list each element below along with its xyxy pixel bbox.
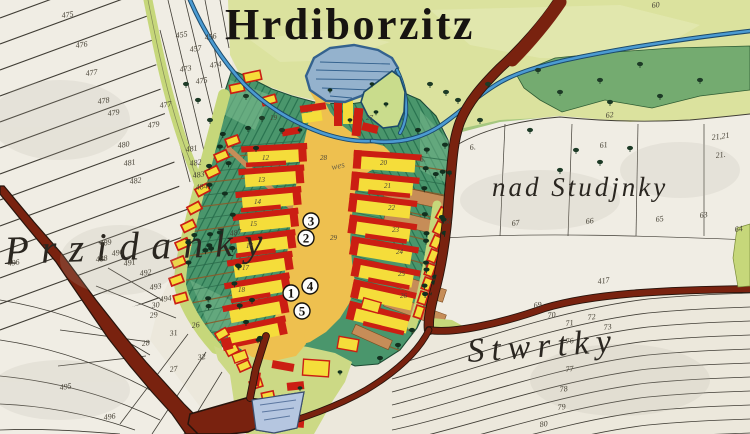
svg-text:13: 13 [258,176,266,184]
svg-text:475: 475 [195,75,208,86]
svg-text:476: 476 [75,39,88,50]
svg-text:66: 66 [585,216,594,226]
svg-text:63: 63 [699,210,708,220]
svg-text:nad Studjnky: nad Studjnky [492,172,668,202]
svg-text:479: 479 [147,119,160,130]
svg-text:26: 26 [400,292,408,300]
svg-text:69: 69 [533,300,542,310]
svg-text:61: 61 [599,140,608,150]
svg-text:70: 70 [547,310,556,320]
svg-text:71: 71 [565,318,574,328]
svg-text:28: 28 [320,154,328,162]
svg-text:64: 64 [734,224,743,234]
svg-text:30: 30 [150,300,160,310]
svg-text:29: 29 [330,234,338,242]
svg-text:489: 489 [99,237,112,248]
svg-text:27: 27 [366,114,374,122]
svg-text:477: 477 [159,99,173,110]
svg-text:14: 14 [254,198,262,206]
svg-text:Hrdiborzitz: Hrdiborzitz [225,0,475,49]
svg-text:480: 480 [117,139,130,150]
svg-text:491: 491 [123,257,136,268]
svg-text:79: 79 [557,402,566,412]
svg-text:482: 482 [189,157,202,168]
svg-text:26: 26 [191,320,200,330]
svg-text:455: 455 [175,29,188,40]
svg-text:76: 76 [565,336,574,346]
svg-text:60: 60 [651,0,660,10]
svg-text:15: 15 [250,220,258,228]
svg-text:495: 495 [59,381,72,392]
svg-text:481: 481 [123,157,136,168]
svg-text:23: 23 [392,226,400,234]
svg-text:28: 28 [141,338,150,348]
svg-text:22: 22 [388,204,396,212]
svg-text:481: 481 [185,143,198,154]
svg-text:20: 20 [380,159,388,167]
svg-text:478: 478 [97,95,110,106]
svg-text:4: 4 [307,279,314,294]
svg-text:19: 19 [270,114,278,122]
svg-text:484: 484 [195,181,208,192]
svg-text:24: 24 [396,248,404,256]
svg-text:473: 473 [179,63,192,74]
svg-text:475: 475 [61,9,74,20]
svg-text:492: 492 [139,267,152,278]
svg-text:1: 1 [288,286,295,301]
svg-text:72: 72 [587,312,596,322]
svg-text:17: 17 [242,264,250,272]
svg-text:18: 18 [238,286,246,294]
svg-text:493: 493 [149,281,162,292]
svg-text:474: 474 [209,59,222,70]
svg-text:494: 494 [159,293,172,304]
svg-text:21.: 21. [715,150,726,160]
svg-text:496: 496 [7,257,20,268]
svg-text:5: 5 [299,304,306,319]
svg-text:2: 2 [303,231,310,246]
svg-text:62: 62 [605,110,614,120]
svg-text:32: 32 [196,352,206,362]
svg-text:417: 417 [597,275,611,286]
svg-text:487: 487 [229,227,243,238]
svg-text:3: 3 [308,214,315,229]
svg-text:80: 80 [539,419,548,429]
svg-text:456: 456 [204,31,217,42]
svg-text:479: 479 [107,107,120,118]
svg-text:482: 482 [129,175,142,186]
svg-text:490: 490 [111,247,124,258]
svg-text:78: 78 [559,384,568,394]
svg-text:488: 488 [95,253,108,264]
svg-text:73: 73 [603,322,612,332]
svg-text:25: 25 [398,270,406,278]
svg-text:16: 16 [246,242,254,250]
svg-text:6.: 6. [469,142,476,152]
svg-text:31: 31 [168,328,178,338]
svg-text:Przidanky: Przidanky [3,219,276,273]
svg-text:496: 496 [103,411,116,422]
svg-text:457: 457 [189,43,203,54]
svg-text:21: 21 [384,182,391,190]
svg-text:29: 29 [149,310,158,320]
svg-text:12: 12 [262,154,270,162]
svg-text:483: 483 [192,169,205,180]
svg-text:6.: 6. [419,154,426,164]
svg-text:65: 65 [655,214,664,224]
svg-text:477: 477 [85,67,99,78]
